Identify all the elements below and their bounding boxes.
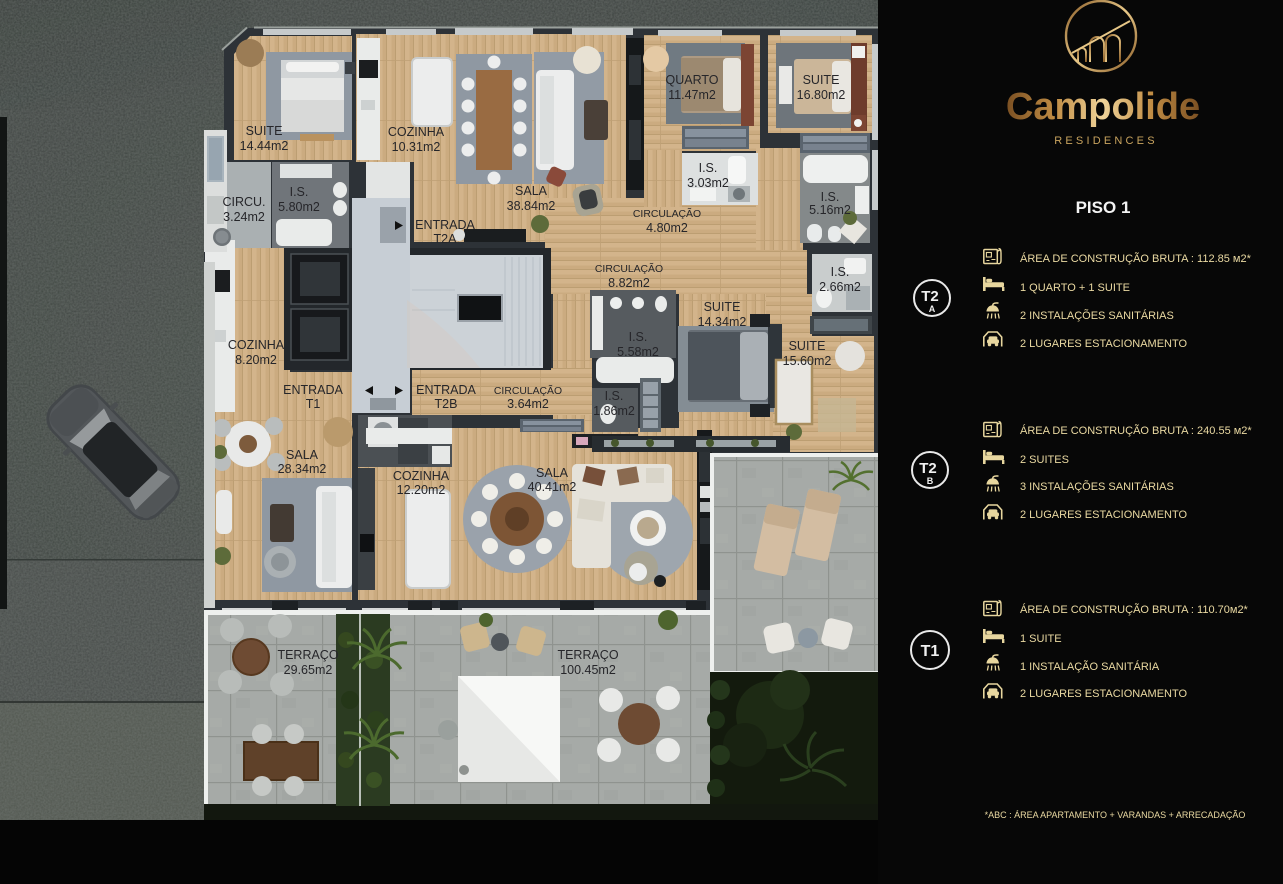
svg-text:I.S.: I.S. — [821, 190, 840, 204]
svg-text:ÁREA DE CONSTRUÇÃO BRUTA : 24: ÁREA DE CONSTRUÇÃO BRUTA : 240.55 м2* — [1020, 424, 1252, 437]
svg-text:8.82m2: 8.82m2 — [608, 276, 650, 290]
svg-text:T2: T2 — [919, 460, 937, 477]
svg-text:I.S.: I.S. — [605, 389, 624, 403]
svg-text:40.41m2: 40.41m2 — [528, 480, 577, 494]
svg-text:ÁREA DE CONSTRUÇÃO BRUTA : 11: ÁREA DE CONSTRUÇÃO BRUTA : 112.85 м2* — [1020, 252, 1252, 265]
svg-text:COZINHA: COZINHA — [228, 338, 285, 352]
svg-text:B: B — [927, 476, 934, 486]
svg-text:SALA: SALA — [515, 184, 548, 198]
svg-text:PISO 1: PISO 1 — [1076, 198, 1131, 217]
svg-text:I.S.: I.S. — [290, 185, 309, 199]
svg-text:2.66m2: 2.66m2 — [819, 280, 861, 294]
svg-text:SALA: SALA — [536, 466, 569, 480]
svg-text:4.80m2: 4.80m2 — [646, 221, 688, 235]
svg-text:12.20m2: 12.20m2 — [397, 483, 446, 497]
svg-text:5.80m2: 5.80m2 — [278, 200, 320, 214]
svg-text:2 LUGARES ESTACIONAMENTO: 2 LUGARES ESTACIONAMENTO — [1020, 509, 1188, 521]
svg-text:T2B: T2B — [435, 397, 458, 411]
svg-text:29.65m2: 29.65m2 — [284, 663, 333, 677]
svg-text:Campolide: Campolide — [1006, 86, 1200, 128]
svg-text:3.24m2: 3.24m2 — [223, 210, 265, 224]
svg-text:T2A: T2A — [434, 232, 458, 246]
svg-text:SUITE: SUITE — [789, 339, 826, 353]
svg-text:1 SUITE: 1 SUITE — [1020, 633, 1062, 645]
svg-text:RESIDENCES: RESIDENCES — [1054, 135, 1158, 147]
svg-text:SUITE: SUITE — [704, 300, 741, 314]
svg-text:ENTRADA: ENTRADA — [415, 218, 475, 232]
svg-text:1 INSTALAÇÃO SANITÁRIA: 1 INSTALAÇÃO SANITÁRIA — [1020, 660, 1160, 673]
svg-text:1.86m2: 1.86m2 — [593, 404, 635, 418]
svg-text:*ABC : ÁREA APARTAMENTO + VAR: *ABC : ÁREA APARTAMENTO + VARANDAS + ARR… — [985, 810, 1246, 820]
svg-text:5.58m2: 5.58m2 — [617, 345, 659, 359]
svg-text:I.S.: I.S. — [699, 161, 718, 175]
svg-text:3 INSTALAÇÕES SANITÁRIAS: 3 INSTALAÇÕES SANITÁRIAS — [1020, 480, 1174, 493]
svg-text:ENTRADA: ENTRADA — [416, 383, 476, 397]
svg-text:T1: T1 — [306, 397, 321, 411]
svg-text:14.34m2: 14.34m2 — [698, 315, 747, 329]
svg-text:COZINHA: COZINHA — [388, 125, 445, 139]
svg-text:CIRCULAÇÃO: CIRCULAÇÃO — [633, 207, 701, 220]
svg-text:100.45m2: 100.45m2 — [560, 663, 616, 677]
svg-text:2 LUGARES ESTACIONAMENTO: 2 LUGARES ESTACIONAMENTO — [1020, 688, 1188, 700]
svg-text:2 SUITES: 2 SUITES — [1020, 454, 1069, 466]
svg-text:SUITE: SUITE — [803, 73, 840, 87]
svg-text:COZINHA: COZINHA — [393, 469, 450, 483]
svg-text:A: A — [929, 304, 936, 314]
svg-text:5.16m2: 5.16m2 — [809, 203, 851, 217]
svg-text:16.80m2: 16.80m2 — [797, 88, 846, 102]
svg-text:3.64m2: 3.64m2 — [507, 397, 549, 411]
svg-text:11.47m2: 11.47m2 — [668, 88, 716, 102]
svg-text:CIRCULAÇÃO: CIRCULAÇÃO — [494, 384, 562, 397]
svg-text:SALA: SALA — [286, 448, 319, 462]
svg-text:2 INSTALAÇÕES SANITÁRIAS: 2 INSTALAÇÕES SANITÁRIAS — [1020, 309, 1174, 322]
svg-text:I.S.: I.S. — [831, 265, 850, 279]
svg-text:TERRAÇO: TERRAÇO — [557, 648, 618, 662]
svg-text:ÁREA DE CONSTRUÇÃO BRUTA : 11: ÁREA DE CONSTRUÇÃO BRUTA : 110.70м2* — [1020, 603, 1249, 616]
svg-text:1 QUARTO + 1 SUITE: 1 QUARTO + 1 SUITE — [1020, 282, 1130, 294]
svg-text:28.34m2: 28.34m2 — [278, 462, 327, 476]
svg-text:14.44m2: 14.44m2 — [240, 139, 289, 153]
svg-text:3.03m2: 3.03m2 — [687, 176, 729, 190]
svg-text:10.31m2: 10.31m2 — [392, 140, 441, 154]
svg-text:ENTRADA: ENTRADA — [283, 383, 343, 397]
svg-text:CIRCULAÇÃO: CIRCULAÇÃO — [595, 262, 663, 275]
svg-text:15.60m2: 15.60m2 — [783, 354, 832, 368]
svg-text:2 LUGARES ESTACIONAMENTO: 2 LUGARES ESTACIONAMENTO — [1020, 338, 1188, 350]
svg-text:SUITE: SUITE — [246, 124, 283, 138]
svg-text:38.84m2: 38.84m2 — [507, 199, 556, 213]
svg-text:T1: T1 — [921, 643, 940, 660]
svg-text:CIRCU.: CIRCU. — [222, 195, 265, 209]
svg-text:T2: T2 — [921, 288, 939, 305]
svg-text:TERRAÇO: TERRAÇO — [277, 648, 338, 662]
svg-text:8.20m2: 8.20m2 — [235, 353, 277, 367]
svg-text:QUARTO: QUARTO — [665, 73, 718, 87]
svg-text:I.S.: I.S. — [629, 330, 648, 344]
